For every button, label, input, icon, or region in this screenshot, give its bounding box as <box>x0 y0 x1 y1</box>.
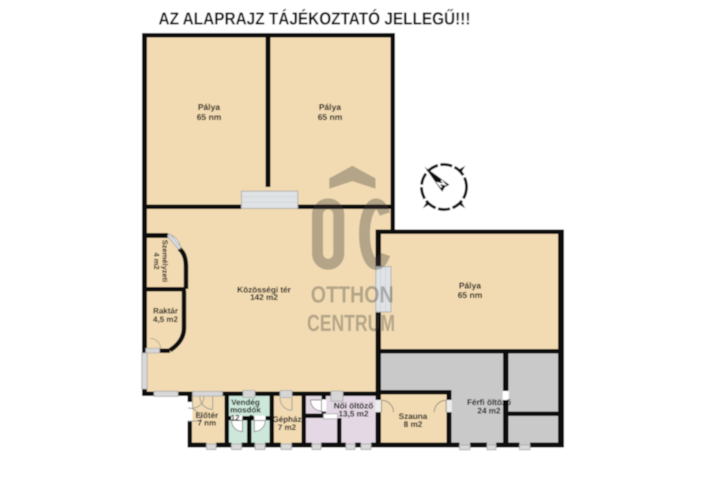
svg-text:8 m2: 8 m2 <box>404 420 423 429</box>
svg-text:4,5 m2: 4,5 m2 <box>153 315 178 324</box>
svg-text:65 nm: 65 nm <box>318 112 343 122</box>
svg-text:OTTHON: OTTHON <box>311 281 394 307</box>
svg-text:7 nm: 7 nm <box>197 419 216 428</box>
svg-text:65 nm: 65 nm <box>197 112 222 122</box>
svg-text:AZ ALAPRAJZ TÁJÉKOZTATÓ JELLEG: AZ ALAPRAJZ TÁJÉKOZTATÓ JELLEGŰ!!! <box>159 9 471 29</box>
svg-text:24 m2: 24 m2 <box>477 406 501 415</box>
svg-text:Pálya: Pálya <box>319 102 341 112</box>
svg-text:12 m2: 12 m2 <box>231 413 254 422</box>
svg-text:13,5 m2: 13,5 m2 <box>338 410 368 419</box>
svg-text:Pálya: Pálya <box>198 102 220 112</box>
svg-text:7 m2: 7 m2 <box>278 423 297 432</box>
svg-text:4 m2: 4 m2 <box>152 252 161 269</box>
svg-text:CENTRUM: CENTRUM <box>307 310 395 336</box>
svg-text:Pálya: Pálya <box>459 280 481 290</box>
svg-text:142 m2: 142 m2 <box>250 293 278 302</box>
svg-text:65 nm: 65 nm <box>458 290 483 300</box>
